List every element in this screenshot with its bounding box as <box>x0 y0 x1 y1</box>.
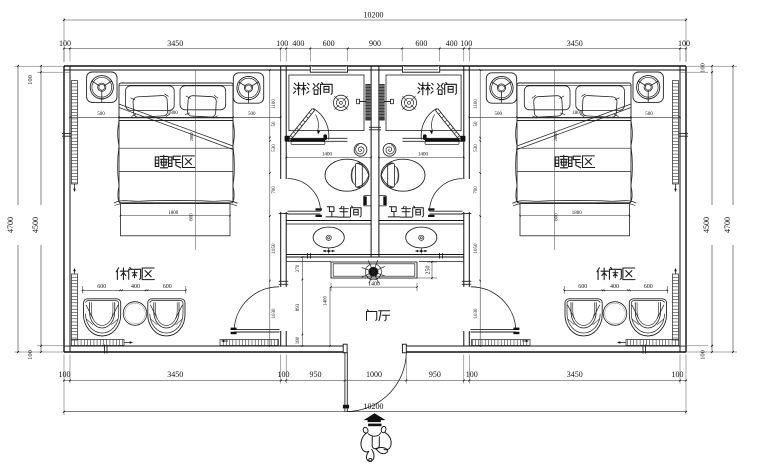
svg-text:530: 530 <box>272 144 277 152</box>
svg-text:400: 400 <box>446 39 458 48</box>
svg-text:1030: 1030 <box>474 308 479 319</box>
svg-text:600: 600 <box>190 213 195 221</box>
svg-text:600: 600 <box>97 284 106 290</box>
svg-text:1800: 1800 <box>572 111 583 116</box>
svg-text:950: 950 <box>429 370 441 379</box>
svg-text:700: 700 <box>474 186 479 194</box>
svg-text:500: 500 <box>495 112 503 117</box>
svg-text:10200: 10200 <box>364 11 384 20</box>
svg-text:1400: 1400 <box>368 282 380 288</box>
svg-text:893: 893 <box>296 303 301 311</box>
svg-text:1400: 1400 <box>418 152 429 157</box>
svg-text:4700: 4700 <box>723 217 732 233</box>
svg-text:180: 180 <box>296 336 301 344</box>
svg-text:100: 100 <box>700 350 707 360</box>
svg-text:600: 600 <box>415 39 427 48</box>
svg-text:100: 100 <box>678 39 690 48</box>
svg-text:400: 400 <box>292 39 304 48</box>
svg-text:2000: 2000 <box>189 132 194 142</box>
svg-text:3450: 3450 <box>567 370 583 379</box>
svg-text:3450: 3450 <box>167 370 183 379</box>
svg-text:100: 100 <box>672 370 684 379</box>
svg-text:4500: 4500 <box>31 217 40 233</box>
svg-text:2000: 2000 <box>553 132 558 142</box>
svg-text:400: 400 <box>610 284 619 290</box>
svg-text:1050: 1050 <box>272 243 277 254</box>
svg-text:100: 100 <box>59 370 71 379</box>
svg-text:950: 950 <box>310 370 322 379</box>
svg-text:100: 100 <box>59 39 71 48</box>
svg-text:50: 50 <box>474 121 479 127</box>
svg-text:1800: 1800 <box>168 211 179 216</box>
svg-text:600: 600 <box>555 213 560 221</box>
svg-text:1800: 1800 <box>572 211 583 216</box>
svg-text:100: 100 <box>700 63 707 73</box>
svg-text:530: 530 <box>474 144 479 152</box>
svg-text:50: 50 <box>272 121 277 127</box>
svg-text:600: 600 <box>578 284 587 290</box>
svg-text:250: 250 <box>426 266 432 275</box>
svg-text:1100: 1100 <box>474 99 479 109</box>
svg-text:3450: 3450 <box>167 39 183 48</box>
svg-text:1100: 1100 <box>272 99 277 109</box>
svg-text:500: 500 <box>248 112 256 117</box>
svg-text:500: 500 <box>97 112 105 117</box>
svg-text:1400: 1400 <box>322 152 333 157</box>
svg-text:500: 500 <box>645 112 653 117</box>
svg-text:900: 900 <box>369 39 381 48</box>
svg-text:1800: 1800 <box>168 111 179 116</box>
svg-text:100: 100 <box>27 350 34 360</box>
svg-text:600: 600 <box>163 284 172 290</box>
svg-text:10200: 10200 <box>364 402 384 411</box>
svg-text:4500: 4500 <box>702 217 711 233</box>
svg-text:400: 400 <box>131 284 140 290</box>
svg-text:100: 100 <box>278 370 290 379</box>
svg-text:4700: 4700 <box>6 217 15 233</box>
svg-text:100: 100 <box>27 75 34 85</box>
svg-text:3450: 3450 <box>567 39 583 48</box>
svg-text:370: 370 <box>296 264 301 272</box>
svg-text:1050: 1050 <box>474 243 479 254</box>
svg-text:700: 700 <box>272 186 277 194</box>
svg-text:600: 600 <box>323 39 335 48</box>
svg-text:600: 600 <box>644 284 653 290</box>
svg-text:100: 100 <box>466 370 478 379</box>
svg-text:1400: 1400 <box>323 296 328 307</box>
svg-text:100: 100 <box>276 39 288 48</box>
svg-text:1030: 1030 <box>272 308 277 319</box>
svg-text:1000: 1000 <box>366 370 382 379</box>
svg-text:100: 100 <box>460 39 472 48</box>
